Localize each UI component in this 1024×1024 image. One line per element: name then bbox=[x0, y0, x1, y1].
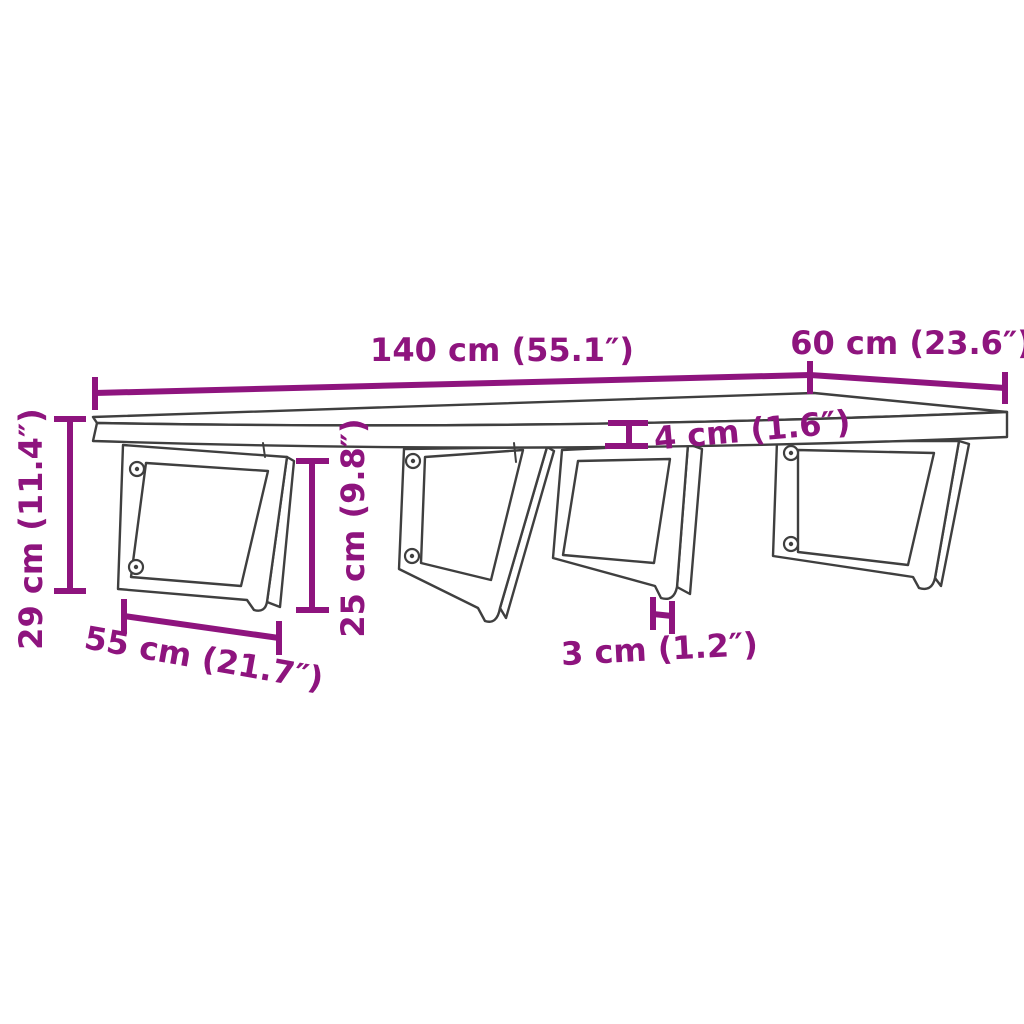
dimension-total-height-label: 29 cm (11.4″) bbox=[12, 408, 50, 650]
bracket-4-screw-top-dot bbox=[789, 451, 793, 455]
dimension-bracket-height-label: 25 cm (9.8″) bbox=[334, 418, 372, 637]
dimension-width-label: 140 cm (55.1″) bbox=[370, 331, 634, 369]
dimension-bracket-depth-label: 55 cm (21.7″) bbox=[82, 618, 327, 697]
bracket-3 bbox=[553, 444, 702, 599]
product-dimension-diagram: 140 cm (55.1″) 60 cm (23.6″) 29 cm (11.4… bbox=[0, 0, 1024, 1024]
bracket-1 bbox=[118, 445, 294, 611]
bracket-2-screw-bottom-dot bbox=[410, 554, 414, 558]
dimension-bar-thickness-line bbox=[653, 614, 672, 616]
bracket-2 bbox=[399, 447, 554, 622]
dimension-total-height: 29 cm (11.4″) bbox=[12, 408, 86, 650]
dimension-depth-line bbox=[810, 375, 1005, 388]
bracket-4 bbox=[773, 441, 969, 589]
bracket-1-screw-bottom-dot bbox=[134, 565, 138, 569]
dimension-depth: 60 cm (23.6″) bbox=[790, 324, 1024, 404]
dimension-depth-label: 60 cm (23.6″) bbox=[790, 324, 1024, 362]
dimension-bar-thickness: 3 cm (1.2″) bbox=[560, 597, 759, 673]
dimension-bar-thickness-label: 3 cm (1.2″) bbox=[560, 625, 759, 673]
bracket-2-screw-top-dot bbox=[411, 459, 415, 463]
dimension-bracket-height: 25 cm (9.8″) bbox=[296, 418, 372, 637]
bracket-4-screw-bottom-dot bbox=[789, 542, 793, 546]
diagram-svg: 140 cm (55.1″) 60 cm (23.6″) 29 cm (11.4… bbox=[0, 0, 1024, 1024]
bracket-1-screw-top-dot bbox=[135, 467, 139, 471]
shelf-drawing bbox=[93, 393, 1007, 622]
dimension-bracket-depth: 55 cm (21.7″) bbox=[82, 599, 327, 698]
dimension-width-line bbox=[95, 375, 810, 393]
bracket-3-opening bbox=[563, 459, 670, 563]
